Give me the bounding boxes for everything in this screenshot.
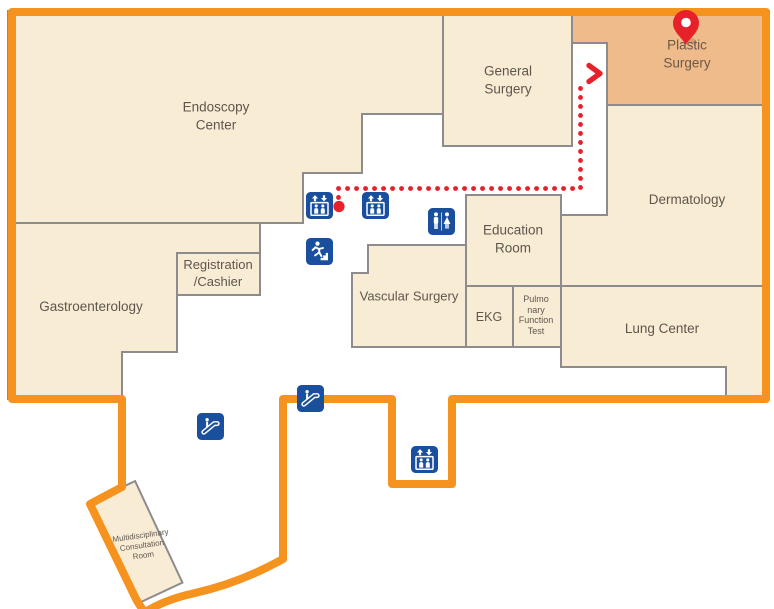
escalator-icon bbox=[197, 413, 224, 440]
elevator-icon bbox=[362, 192, 389, 219]
room-dermatology bbox=[561, 105, 769, 286]
restroom-icon bbox=[428, 208, 455, 235]
route-start-dot bbox=[333, 201, 344, 212]
escalator-icon bbox=[297, 385, 324, 412]
room-pulmonary-function-test bbox=[513, 286, 561, 347]
elevator-icon bbox=[411, 446, 438, 473]
room-ekg bbox=[466, 286, 513, 347]
room-lung-center bbox=[561, 286, 769, 399]
elevator-icon bbox=[306, 192, 333, 219]
room-education-room bbox=[466, 195, 561, 286]
emergency-exit-icon bbox=[306, 238, 333, 265]
room-registration-cashier bbox=[177, 253, 260, 295]
room-endoscopy-center bbox=[8, 11, 443, 223]
route-arrow-chevron bbox=[589, 66, 600, 82]
floor-map-canvas bbox=[0, 0, 774, 609]
hospital-floor-map: Endoscopy Center General Surgery Plastic… bbox=[0, 0, 774, 609]
room-general-surgery bbox=[443, 11, 572, 146]
room-vascular-surgery bbox=[352, 245, 466, 347]
room-gastroenterology bbox=[8, 223, 260, 399]
room-plastic-surgery bbox=[572, 11, 769, 105]
